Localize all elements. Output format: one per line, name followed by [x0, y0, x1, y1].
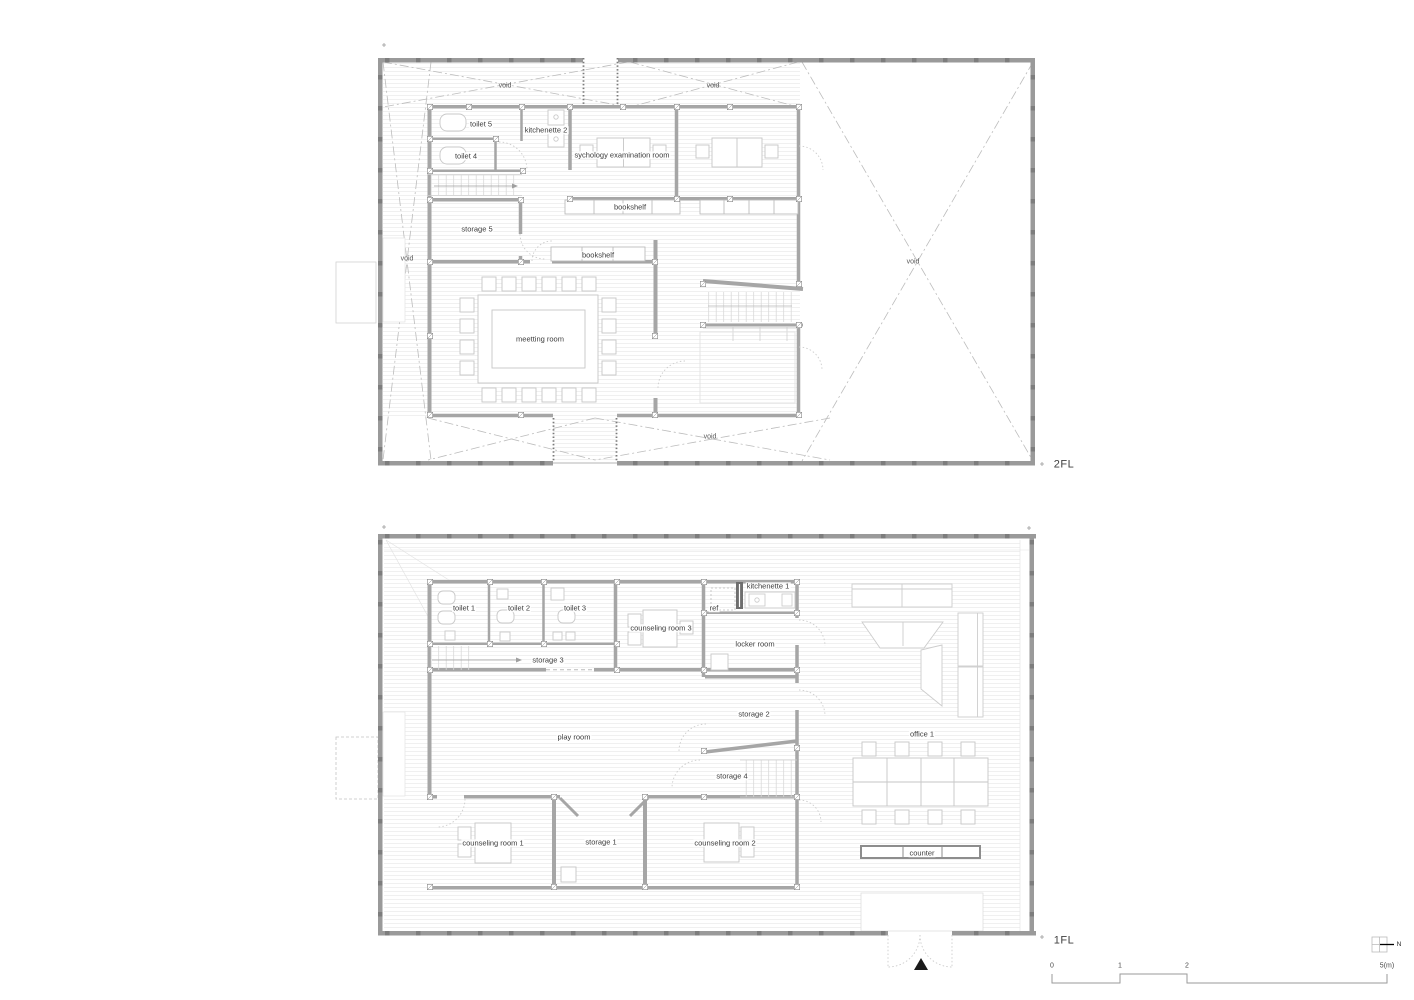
balcony-outline-2fl: [336, 262, 376, 323]
scale-tick-1: 1: [1117, 963, 1123, 970]
room-label-meeting: meetting room: [515, 335, 565, 343]
room-label-toilet4: toilet 4: [454, 152, 478, 160]
room-label-counseling1: counseling room 1: [461, 839, 524, 847]
room-label-void-top-left: void: [498, 83, 513, 90]
room-label-void-left: void: [400, 256, 415, 263]
room-label-ref: ref: [709, 604, 720, 612]
room-label-void-right: void: [906, 259, 921, 266]
entrance-porch: [861, 893, 983, 931]
room-label-storage1: storage 1: [584, 838, 617, 846]
room-label-toilet5: toilet 5: [469, 120, 493, 128]
room-label-kitchenette2: kitchenette 2: [524, 126, 569, 134]
room-label-void-bottom: void: [703, 434, 718, 441]
floorplan-drawing: [0, 0, 1414, 1000]
north-icon: [1372, 937, 1394, 952]
floor-2fl-plan: [336, 43, 1044, 466]
room-label-bookshelf-mid: bookshelf: [581, 251, 615, 259]
scale-bar: [1052, 974, 1387, 983]
stairs-2fl-west: [428, 175, 522, 196]
floor-1fl-plan: [336, 525, 1044, 970]
canopy-dashed-1fl: [336, 737, 378, 799]
scale-tick-0: 0: [1049, 963, 1055, 970]
room-label-void-top-right: void: [706, 83, 721, 90]
entrance-doors: [888, 935, 952, 970]
room-label-toilet3: toilet 3: [563, 604, 587, 612]
scale-tick-2: 2: [1184, 963, 1190, 970]
north-label: N: [1396, 942, 1403, 949]
room-label-kitchenette1: kitchenette 1: [746, 582, 791, 590]
room-label-bookshelf-top: bookshelf: [613, 203, 647, 211]
room-label-playroom: play room: [557, 733, 592, 741]
floorplan-page: void void toilet 5 kitchenette 2 toilet …: [0, 0, 1414, 1000]
room-label-counseling2: counseling room 2: [693, 839, 756, 847]
entrance-arrow: [914, 958, 928, 970]
room-label-storage5: storage 5: [460, 225, 493, 233]
scale-tick-5m: 5(m): [1379, 963, 1395, 970]
room-label-locker: locker room: [734, 640, 775, 648]
floor-label-1fl: 1FL: [1053, 936, 1075, 947]
room-label-storage3: storage 3: [531, 656, 564, 664]
room-label-psych-exam: sychology examination room: [573, 151, 670, 159]
room-label-toilet2: toilet 2: [507, 604, 531, 612]
floor-label-2fl: 2FL: [1053, 460, 1075, 471]
room-label-storage2: storage 2: [737, 710, 770, 718]
room-label-toilet1: toilet 1: [452, 604, 476, 612]
room-label-storage4: storage 4: [715, 772, 748, 780]
room-label-counter: counter: [908, 849, 935, 857]
room-label-office1: office 1: [909, 730, 935, 738]
room-label-counseling3: counseling room 3: [629, 624, 692, 632]
